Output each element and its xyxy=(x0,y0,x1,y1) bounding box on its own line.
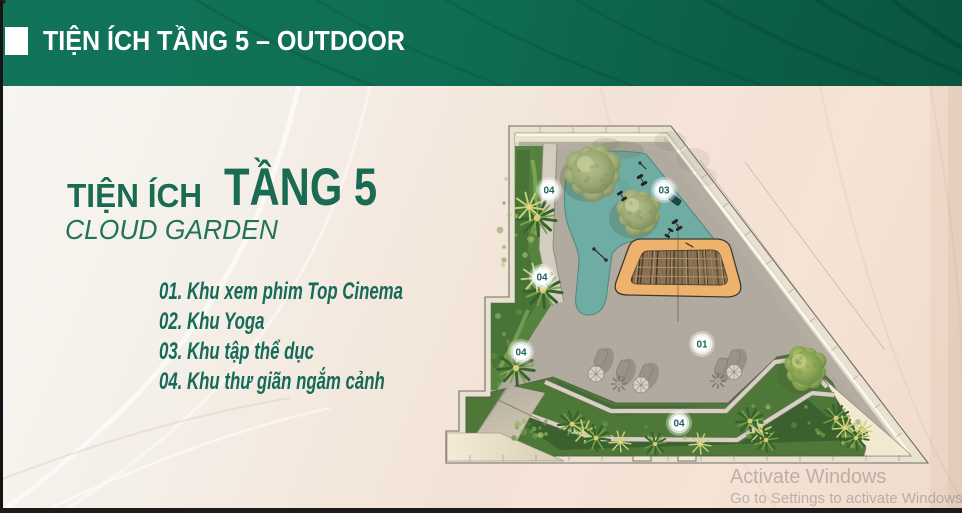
svg-text:04: 04 xyxy=(536,273,548,284)
svg-text:01: 01 xyxy=(696,340,708,351)
svg-text:04: 04 xyxy=(543,186,555,197)
svg-text:04: 04 xyxy=(673,419,685,430)
svg-text:04: 04 xyxy=(515,348,527,359)
svg-text:03: 03 xyxy=(658,186,670,197)
